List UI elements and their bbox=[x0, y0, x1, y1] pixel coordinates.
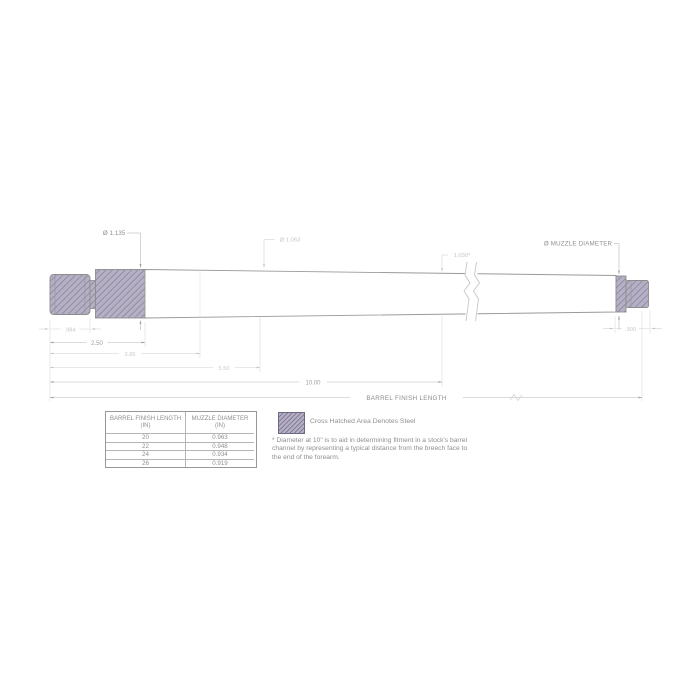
dim-shank-length: 2.50 bbox=[91, 341, 103, 347]
dim-shank-diameter: Ø 1.135 bbox=[103, 230, 126, 237]
dim-finish-length-label: BARREL FINISH LENGTH bbox=[366, 395, 446, 402]
dim-mid-diameter: Ø 1.063 bbox=[280, 238, 301, 244]
dim-taper-length: 3.86 bbox=[125, 352, 136, 358]
table-cell-length: 22 bbox=[106, 442, 186, 451]
table-cell-length: 20 bbox=[106, 433, 186, 442]
dim-mid-length: 5.50 bbox=[219, 366, 230, 372]
barrel-tenon-threads bbox=[50, 275, 90, 315]
dim-muzzle-diameter-label: Ø MUZZLE DIAMETER bbox=[544, 241, 613, 248]
dim-muzzle-cap-length: .900 bbox=[625, 327, 636, 333]
barrel-breech-shank bbox=[96, 270, 146, 319]
table-cell-diameter: 0.919 bbox=[186, 459, 254, 468]
barrel-body-group bbox=[50, 261, 649, 323]
page-background: Ø 1.135 Ø 1.063 1.030* Ø MUZZLE DIAMETER… bbox=[0, 0, 700, 700]
dim-channel-length: 10.00 bbox=[305, 381, 321, 387]
barrel-body bbox=[145, 270, 616, 319]
table-header-finish-length: BARREL FINISH LENGTH (IN) bbox=[106, 412, 186, 433]
footnote-text: * Diameter at 10" is to aid in determini… bbox=[272, 437, 478, 462]
table-cell-diameter: 0.963 bbox=[186, 433, 254, 442]
table-cell-diameter: 0.948 bbox=[186, 442, 254, 451]
table-cell-length: 26 bbox=[106, 459, 186, 468]
table-header-title: BARREL FINISH LENGTH bbox=[110, 416, 181, 423]
table-header-muzzle-diameter: MUZZLE DIAMETER (IN) bbox=[186, 412, 254, 433]
barrel-technical-drawing: Ø 1.135 Ø 1.063 1.030* Ø MUZZLE DIAMETER… bbox=[0, 0, 700, 700]
barrel-thread-relief bbox=[90, 281, 96, 309]
table-header-title: MUZZLE DIAMETER bbox=[192, 416, 249, 423]
table-row: 26 0.919 bbox=[106, 459, 256, 468]
muzzle-disc bbox=[616, 276, 626, 312]
barrel-spec-table: BARREL FINISH LENGTH (IN) MUZZLE DIAMETE… bbox=[105, 411, 257, 468]
muzzle-thread-protector bbox=[626, 281, 649, 308]
table-row: 20 0.963 bbox=[106, 433, 256, 442]
dim-text-gaps bbox=[61, 325, 640, 402]
dim-tenon-length: .984 bbox=[65, 328, 76, 334]
table-row: 24 0.934 bbox=[106, 450, 256, 459]
table-cell-length: 24 bbox=[106, 450, 186, 459]
dim-diameter-at-10: 1.030* bbox=[454, 253, 472, 259]
table-row: 22 0.948 bbox=[106, 442, 256, 451]
table-header-unit: (IN) bbox=[215, 423, 225, 430]
table-cell-diameter: 0.934 bbox=[186, 450, 254, 459]
table-header-unit: (IN) bbox=[141, 423, 151, 430]
cross-hatch-swatch-icon bbox=[278, 412, 305, 434]
legend-label: Cross Hatched Area Denotes Steel bbox=[310, 418, 415, 425]
table-header-row: BARREL FINISH LENGTH (IN) MUZZLE DIAMETE… bbox=[106, 412, 256, 433]
